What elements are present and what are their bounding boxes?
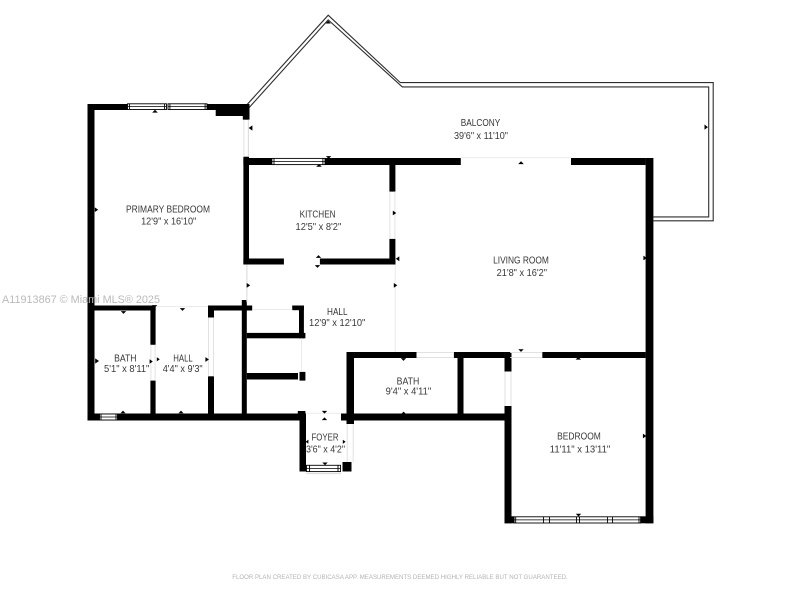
svg-text:3'6" x 4'2": 3'6" x 4'2" — [306, 444, 345, 456]
svg-text:BEDROOM: BEDROOM — [557, 431, 601, 442]
svg-text:11'11" x 13'11": 11'11" x 13'11" — [550, 443, 611, 455]
svg-text:PRIMARY BEDROOM: PRIMARY BEDROOM — [126, 204, 210, 215]
svg-text:4'4" x 9'3": 4'4" x 9'3" — [163, 363, 203, 375]
svg-text:12'5" x 8'2": 12'5" x 8'2" — [296, 221, 342, 233]
svg-text:21'8" x 16'2": 21'8" x 16'2" — [497, 267, 548, 279]
svg-text:LIVING ROOM: LIVING ROOM — [493, 256, 549, 267]
svg-text:KITCHEN: KITCHEN — [300, 209, 336, 220]
svg-text:5'1" x 8'11": 5'1" x 8'11" — [104, 363, 150, 375]
svg-text:39'6" x 11'10": 39'6" x 11'10" — [454, 130, 508, 142]
svg-text:FOYER: FOYER — [312, 433, 339, 444]
svg-text:9'4" x 4'11": 9'4" x 4'11" — [386, 386, 432, 398]
svg-text:FLOOR PLAN CREATED BY CUBICASA: FLOOR PLAN CREATED BY CUBICASA APP. MEAS… — [232, 574, 568, 581]
svg-text:12'9" x 16'10": 12'9" x 16'10" — [141, 216, 196, 228]
svg-text:12'9" x 12'10": 12'9" x 12'10" — [309, 317, 366, 329]
svg-text:A11913867 © Miami MLS® 2025: A11913867 © Miami MLS® 2025 — [2, 294, 160, 306]
svg-text:BALCONY: BALCONY — [461, 118, 501, 129]
